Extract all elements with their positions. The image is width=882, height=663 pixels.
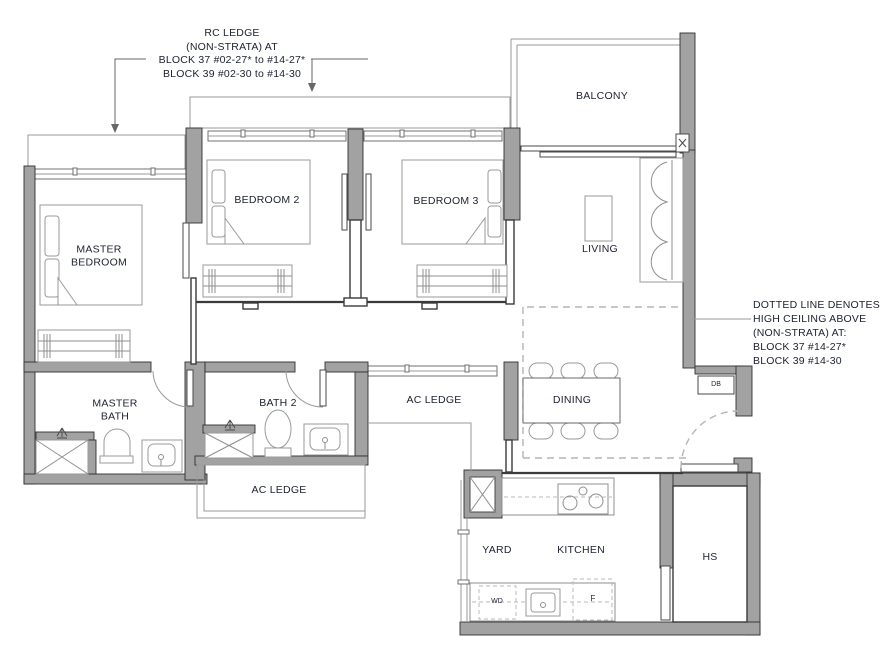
annotation-line: BLOCK 37 #02-27* to #14-27* — [112, 54, 352, 68]
kitchen-sink-icon — [526, 589, 560, 616]
room-label-ac-ledge-right: AC LEDGE — [406, 394, 461, 407]
floor-plan-drawing — [0, 0, 882, 663]
duct-x-icon — [470, 477, 495, 512]
room-label-bath-2: BATH 2 — [259, 397, 296, 410]
coffee-table-icon — [585, 196, 612, 241]
entrance-door-leaf — [681, 464, 738, 472]
balcony-x-icon — [676, 134, 689, 152]
annotation-line: BLOCK 37 #14-27* — [753, 340, 881, 354]
room-label-master-bath: MASTER BATH — [92, 398, 137, 423]
room-label-master-bedroom: MASTER BEDROOM — [71, 244, 127, 269]
hob-icon — [558, 484, 608, 514]
room-label-bedroom-2: BEDROOM 2 — [234, 194, 299, 207]
wd-label: WD — [491, 596, 503, 609]
room-label-ac-ledge-bottom: AC LEDGE — [251, 484, 306, 497]
rc-ledge-annotation: RC LEDGE (NON-STRATA) AT BLOCK 37 #02-27… — [112, 27, 352, 81]
room-label-living: LIVING — [582, 243, 618, 256]
hs-door-leaf — [661, 566, 670, 620]
walls — [24, 33, 760, 635]
annotation-line: RC LEDGE — [112, 27, 352, 41]
room-label-kitchen: KITCHEN — [557, 544, 605, 557]
room-label-yard: YARD — [482, 544, 511, 557]
sofa-icon — [640, 158, 683, 282]
annotation-line: (NON-STRATA) AT: — [753, 326, 881, 340]
annotation-line: DOTTED LINE DENOTES — [753, 298, 881, 312]
room-label-balcony: BALCONY — [576, 90, 628, 103]
annotation-line: (NON-STRATA) AT — [112, 41, 352, 55]
floor-plan: MASTER BEDROOM BEDROOM 2 BEDROOM 3 BALCO… — [0, 0, 882, 663]
room-label-bedroom-3: BEDROOM 3 — [413, 195, 478, 208]
high-ceiling-annotation: DOTTED LINE DENOTES HIGH CEILING ABOVE (… — [753, 298, 881, 368]
annotation-line: BLOCK 39 #14-30 — [753, 354, 881, 368]
entrance-door-arc — [681, 411, 738, 468]
annotation-line: HIGH CEILING ABOVE — [753, 312, 881, 326]
db-label: DB — [711, 379, 721, 392]
room-label-hs: HS — [702, 551, 717, 564]
annotation-line: BLOCK 39 #02-30 to #14-30 — [112, 68, 352, 82]
sliding-door — [521, 146, 676, 157]
fridge-label: F — [591, 593, 596, 606]
room-label-dining: DINING — [553, 394, 591, 407]
